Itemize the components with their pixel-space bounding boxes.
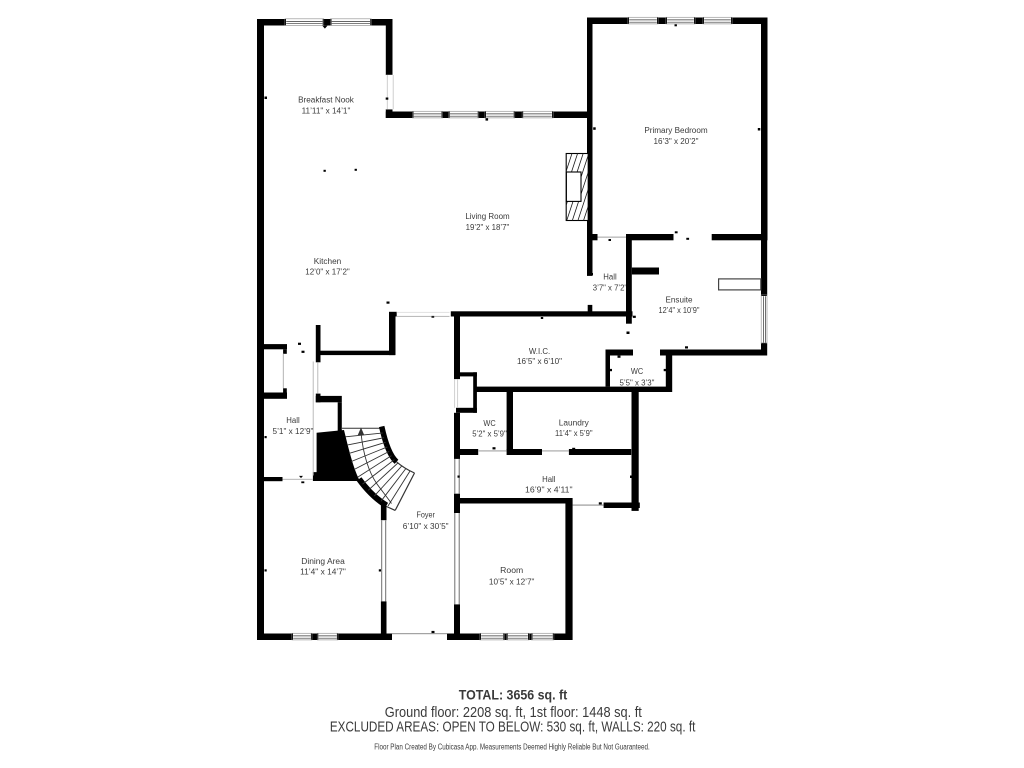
svg-text:16’9" x 4’11": 16’9" x 4’11" — [525, 486, 573, 495]
svg-text:Foyer: Foyer — [416, 511, 435, 520]
svg-text:10’5" x 12’7": 10’5" x 12’7" — [489, 578, 535, 587]
svg-text:Living Room: Living Room — [465, 212, 510, 221]
svg-text:Ensuite: Ensuite — [666, 295, 694, 304]
svg-text:Hall: Hall — [286, 416, 300, 425]
svg-text:16’3" x 20’2": 16’3" x 20’2" — [654, 137, 699, 146]
svg-text:5’5" x 3’3": 5’5" x 3’3" — [620, 379, 655, 388]
svg-text:Breakfast Nook: Breakfast Nook — [298, 96, 355, 105]
svg-text:6’10" x 30’5": 6’10" x 30’5" — [403, 522, 449, 531]
svg-text:WC: WC — [631, 367, 644, 376]
svg-text:WC: WC — [483, 419, 496, 428]
svg-text:16’5" x 6’10": 16’5" x 6’10" — [517, 357, 562, 366]
svg-text:TOTAL: 3656 sq. ft: TOTAL: 3656 sq. ft — [459, 687, 568, 703]
svg-text:Hall: Hall — [603, 273, 617, 282]
svg-text:3’7" x 7’2": 3’7" x 7’2" — [593, 284, 628, 293]
svg-text:5’2" x 5’9": 5’2" x 5’9" — [472, 430, 507, 439]
svg-text:11’4" x 5’9": 11’4" x 5’9" — [555, 429, 593, 438]
svg-text:Laundry: Laundry — [559, 418, 589, 427]
svg-text:Floor Plan Created By Cubicasa: Floor Plan Created By Cubicasa App. Meas… — [374, 743, 650, 752]
svg-text:Room: Room — [500, 566, 523, 575]
svg-text:19’2" x 18’7": 19’2" x 18’7" — [466, 223, 510, 232]
svg-text:Kitchen: Kitchen — [314, 257, 342, 266]
svg-text:5’1" x 12’9": 5’1" x 12’9" — [273, 427, 314, 436]
svg-text:11’11" x 14’1": 11’11" x 14’1" — [302, 107, 351, 116]
svg-text:12’4" x 10’9": 12’4" x 10’9" — [659, 306, 700, 315]
svg-text:Dining Area: Dining Area — [301, 557, 345, 566]
svg-text:EXCLUDED AREAS: OPEN TO BELOW:: EXCLUDED AREAS: OPEN TO BELOW: 530 sq. f… — [330, 720, 696, 736]
svg-text:Ground floor: 2208 sq. ft, 1st: Ground floor: 2208 sq. ft, 1st floor: 14… — [385, 705, 642, 721]
svg-text:W.I.C.: W.I.C. — [529, 347, 550, 356]
svg-text:11’4" x 14’7": 11’4" x 14’7" — [300, 567, 346, 576]
svg-text:Primary Bedroom: Primary Bedroom — [644, 126, 708, 135]
svg-text:12’0" x 17’2": 12’0" x 17’2" — [305, 268, 350, 277]
svg-text:Hall: Hall — [542, 475, 556, 484]
